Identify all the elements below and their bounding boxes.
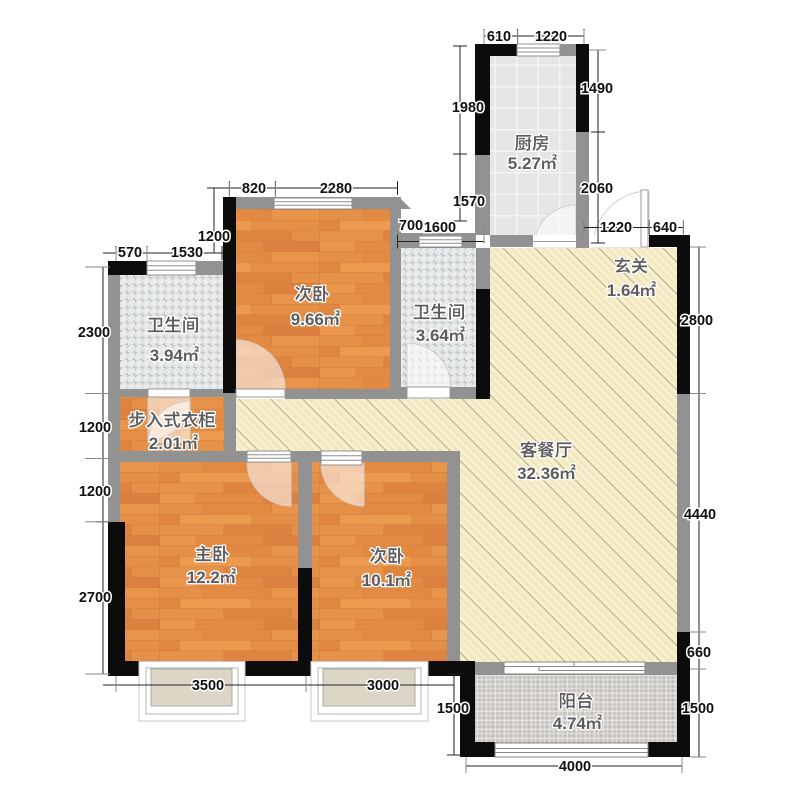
svg-text:2700: 2700 bbox=[79, 590, 111, 606]
svg-text:1980: 1980 bbox=[452, 100, 484, 116]
svg-text:12.2: 12.2 bbox=[187, 568, 220, 587]
svg-text:1.64: 1.64 bbox=[607, 281, 641, 300]
svg-text:820: 820 bbox=[242, 181, 266, 197]
svg-text:2060: 2060 bbox=[581, 181, 613, 197]
svg-text:660: 660 bbox=[687, 645, 711, 661]
svg-text:9.66: 9.66 bbox=[291, 310, 324, 329]
svg-text:32.36: 32.36 bbox=[517, 464, 560, 483]
svg-text:1220: 1220 bbox=[600, 220, 632, 236]
svg-text:3500: 3500 bbox=[192, 678, 224, 694]
svg-text:1600: 1600 bbox=[424, 220, 456, 236]
svg-text:1500: 1500 bbox=[437, 701, 469, 717]
svg-text:610: 610 bbox=[487, 29, 511, 45]
svg-text:2.01: 2.01 bbox=[149, 434, 182, 453]
svg-text:4000: 4000 bbox=[559, 759, 591, 775]
svg-text:2300: 2300 bbox=[78, 325, 110, 341]
svg-text:10.1: 10.1 bbox=[362, 571, 395, 590]
svg-text:3.64: 3.64 bbox=[416, 326, 450, 345]
svg-text:3.94: 3.94 bbox=[150, 346, 184, 365]
svg-text:570: 570 bbox=[118, 245, 142, 261]
svg-text:1490: 1490 bbox=[581, 81, 613, 97]
svg-text:1530: 1530 bbox=[171, 245, 203, 261]
svg-text:4.74: 4.74 bbox=[553, 714, 587, 733]
svg-text:4440: 4440 bbox=[684, 507, 716, 523]
svg-text:2280: 2280 bbox=[320, 181, 352, 197]
svg-text:1500: 1500 bbox=[682, 701, 714, 717]
svg-text:640: 640 bbox=[653, 220, 677, 236]
svg-text:1200: 1200 bbox=[79, 420, 111, 436]
svg-text:1220: 1220 bbox=[535, 29, 567, 45]
svg-text:1200: 1200 bbox=[79, 484, 111, 500]
svg-text:3000: 3000 bbox=[367, 678, 399, 694]
svg-text:1570: 1570 bbox=[453, 194, 485, 210]
svg-text:700: 700 bbox=[399, 218, 423, 234]
svg-text:1200: 1200 bbox=[198, 229, 230, 245]
svg-text:2800: 2800 bbox=[681, 313, 713, 329]
svg-text:5.27: 5.27 bbox=[508, 154, 541, 173]
